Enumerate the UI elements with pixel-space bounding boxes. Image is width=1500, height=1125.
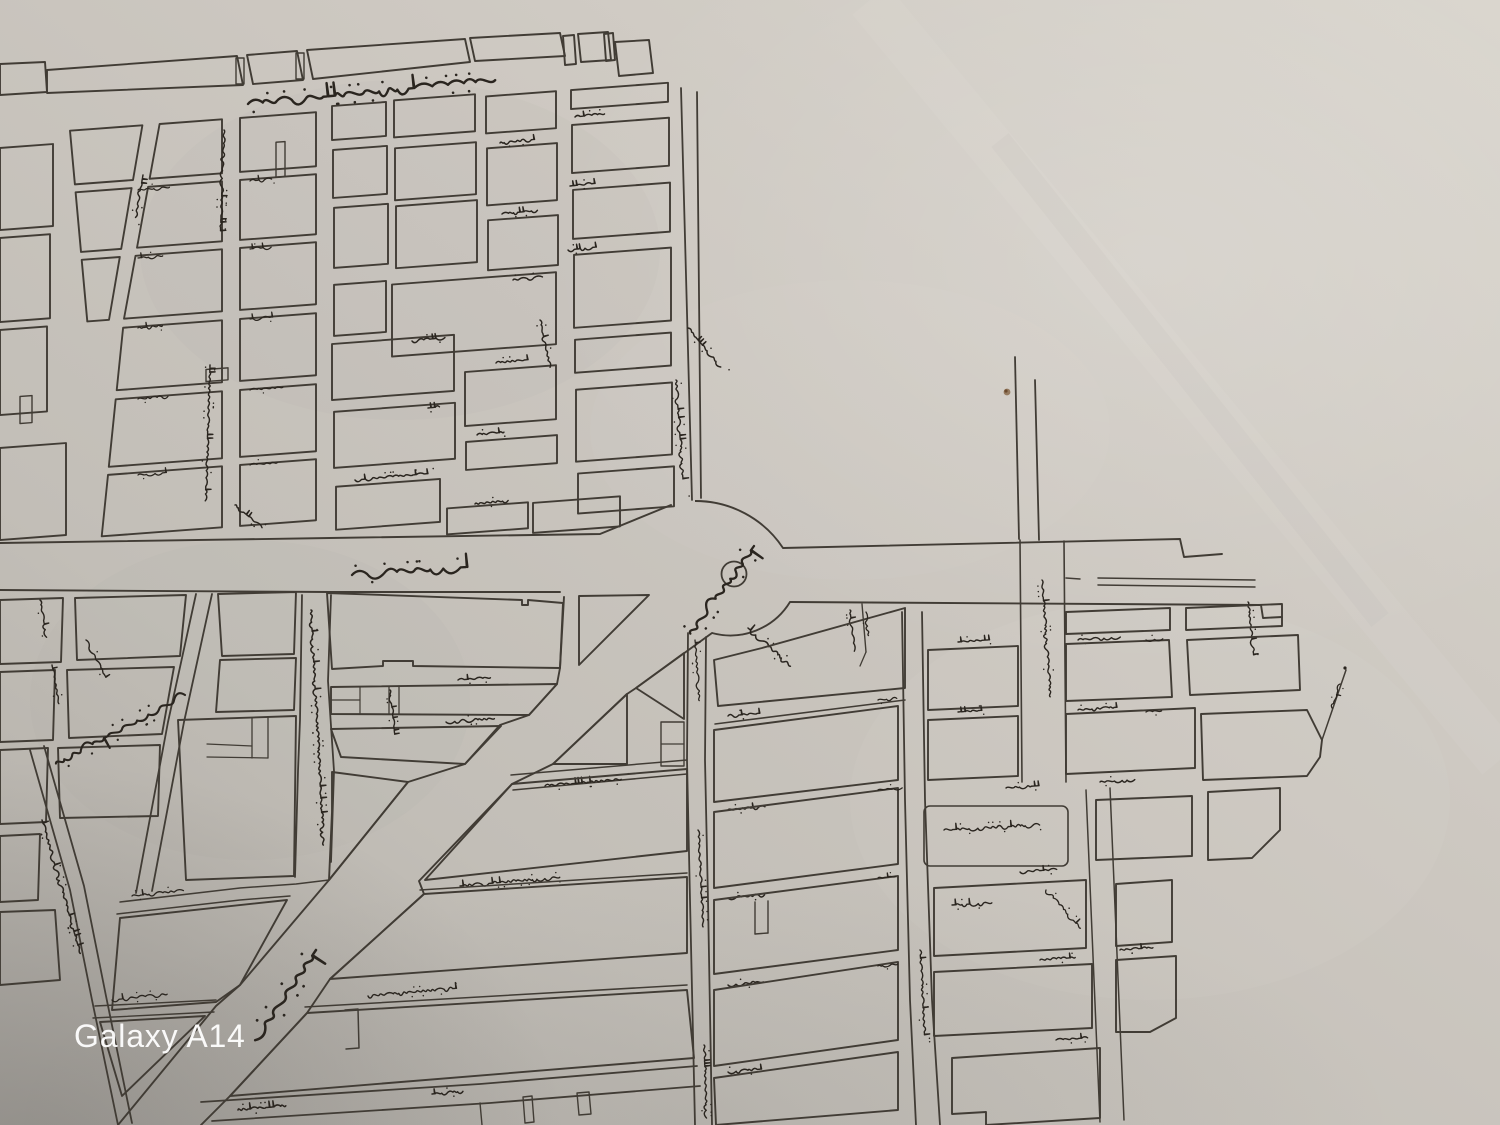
svg-text:Galaxy A14: Galaxy A14 <box>74 1018 246 1054</box>
